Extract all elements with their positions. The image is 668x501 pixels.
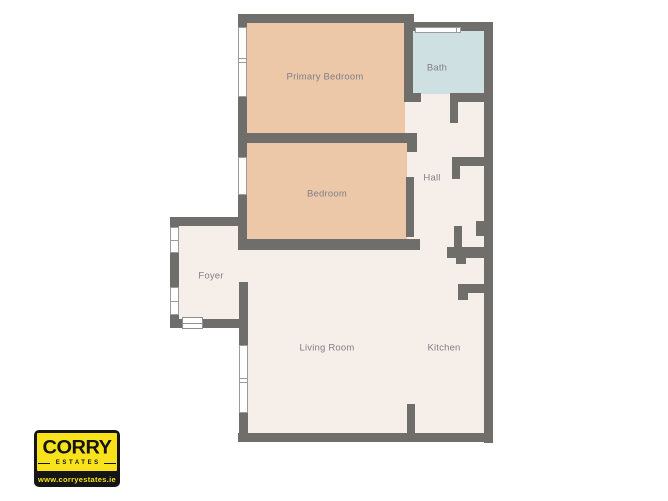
window-primary-bedroom [238,27,247,97]
wall-bedroom-right [406,177,414,237]
room-label-primary-bedroom: Primary Bedroom [287,72,364,83]
wall-bedroom-bottom [238,239,420,250]
room-label-bath: Bath [427,63,447,74]
wall-top-main [238,14,414,23]
wall-primary-bedroom-right [404,14,413,102]
wall-right-exterior [484,22,493,443]
room-label-foyer: Foyer [198,271,223,282]
window-bedroom [238,157,247,195]
room-fill-bath [412,30,485,94]
window-living-room [239,345,248,413]
wall-right-nub [476,221,484,236]
wall-between-bedrooms [238,133,417,143]
floorplan-page: Primary Bedroom Bath Bedroom Hall Foyer … [0,0,668,501]
wall-hall-stub-up [454,226,462,247]
wall-bottom-exterior [238,433,493,442]
dash-icon [38,463,50,464]
agency-logo-brand: CORRY [43,439,112,458]
wall-hall-thick-band [447,247,484,258]
agency-logo-website: www.corryestates.ie [34,475,120,484]
window-foyer-upper [170,227,179,253]
room-label-bedroom: Bedroom [307,189,347,200]
wall-kitchen-top [458,284,484,293]
wall-bedroom-door-jamb [407,133,417,152]
room-label-kitchen: Kitchen [427,343,460,354]
agency-logo-panel: CORRY ESTATES [37,433,117,471]
wall-kitchen-living-stub [407,404,415,433]
agency-logo-tagline: ESTATES [53,460,101,466]
wall-foyer-top [170,217,247,226]
window-foyer-lower [170,287,179,315]
wall-closet-b [452,157,484,166]
room-label-living-room: Living Room [299,343,354,354]
wall-kitchen-top-hook [458,293,468,300]
agency-logo-tagline-row: ESTATES [38,460,116,466]
wall-bath-bottom-left [404,93,421,102]
window-bath [415,27,461,33]
agency-logo: CORRY ESTATES www.corryestates.ie [34,430,120,487]
dash-icon [104,463,116,464]
wall-bath-bottom-right [450,93,484,102]
wall-closet-a-stub [450,102,458,123]
entry-door [182,317,203,329]
room-label-hall: Hall [423,173,440,184]
wall-closet-b-stub [452,166,460,179]
wall-hall-nub-below [456,258,466,264]
